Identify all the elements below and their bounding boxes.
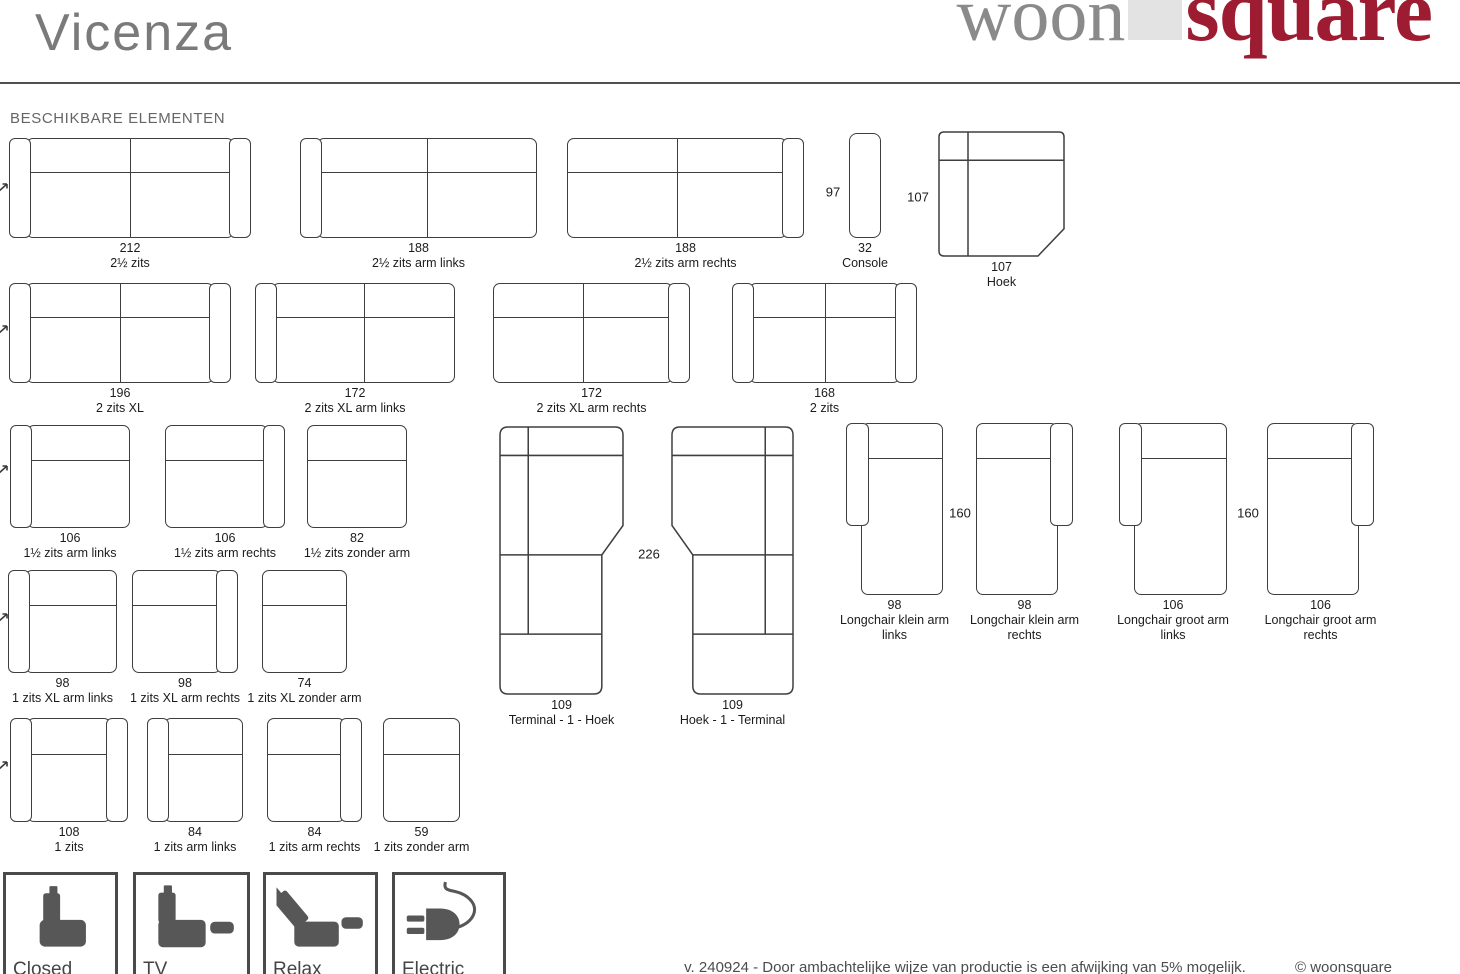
- back-cushion-line: [164, 754, 243, 755]
- feature-box-tv: TV: [133, 872, 250, 974]
- seat-divider-line: [427, 139, 428, 237]
- sofa-body: [26, 138, 234, 238]
- element-width-value: 106: [23, 531, 116, 546]
- footer-copyright: © woonsquare: [1295, 959, 1392, 974]
- back-cushion-line: [25, 605, 117, 606]
- element-name: 2 zits XL arm rechts: [537, 401, 647, 416]
- element-label-1half-zits-arm-links: 1061½ zits arm links: [23, 531, 116, 561]
- element-diagram-1-zits-arm-rechts: [267, 718, 362, 822]
- element-name: Longchair groot arm links: [1114, 613, 1232, 643]
- element-width-value: 106: [174, 531, 276, 546]
- element-diagram-2half-zits-arm-links: [300, 138, 537, 238]
- dimension-value: 107: [907, 190, 929, 205]
- back-cushion-line: [307, 460, 407, 461]
- element-diagram-longchair-groot-arm-links: [1119, 423, 1227, 595]
- element-label-1-zits: 1081 zits: [54, 825, 83, 855]
- right-arm: [782, 138, 804, 238]
- element-label-1-zits-arm-rechts: 841 zits arm rechts: [269, 825, 361, 855]
- logo-square-icon: [1128, 0, 1182, 40]
- seat-divider-line: [120, 284, 121, 382]
- relax-position-icon: [276, 879, 365, 964]
- element-width-value: 32: [842, 241, 888, 256]
- left-arm: [300, 138, 322, 238]
- right-arm: [216, 570, 238, 673]
- element-width-value: 106: [1262, 598, 1380, 613]
- sofa-body: [493, 283, 673, 383]
- closed-position-icon: [16, 879, 105, 964]
- element-name: 1 zits zonder arm: [374, 840, 470, 855]
- element-diagram-2-zits-xl: [9, 283, 231, 383]
- right-arm: [263, 425, 285, 528]
- element-name: 1 zits XL arm rechts: [130, 691, 240, 706]
- element-width-value: 188: [634, 241, 736, 256]
- element-name: 1½ zits zonder arm: [304, 546, 410, 561]
- element-name: 1 zits XL arm links: [12, 691, 113, 706]
- element-label-console: 32Console: [842, 241, 888, 271]
- sofa-body: [317, 138, 537, 238]
- element-width-value: 172: [537, 386, 647, 401]
- element-diagram-2-zits: [732, 283, 917, 383]
- element-label-2half-zits: 2122½ zits: [110, 241, 150, 271]
- element-width-value: 109: [509, 698, 615, 713]
- feature-label: Relax: [273, 959, 322, 974]
- element-diagram-2half-zits-arm-rechts: [567, 138, 804, 238]
- back-cushion-line: [861, 458, 943, 459]
- sofa-body: [25, 570, 117, 673]
- back-cushion-line: [1267, 458, 1359, 459]
- element-width-value: 98: [12, 676, 113, 691]
- element-name: 1 zits arm links: [154, 840, 237, 855]
- element-diagram-1half-zits-arm-rechts: [165, 425, 285, 528]
- sofa-body: [749, 283, 900, 383]
- dimension-value: 160: [1237, 506, 1259, 521]
- element-diagram-1half-zits-zonder-arm: [307, 425, 407, 528]
- element-diagram-longchair-klein-arm-rechts: [976, 423, 1073, 595]
- element-name: Console: [842, 256, 888, 271]
- element-name: 1 zits arm rechts: [269, 840, 361, 855]
- section-heading: BESCHIKBARE ELEMENTEN: [10, 110, 225, 127]
- back-cushion-line: [262, 605, 347, 606]
- right-arm: [668, 283, 690, 383]
- element-diagram-2-zits-xl-arm-rechts: [493, 283, 690, 383]
- sofa-body: [164, 718, 243, 822]
- seat-divider-line: [825, 284, 826, 382]
- element-width-value: 98: [966, 598, 1084, 613]
- element-label-2-zits: 1682 zits: [810, 386, 839, 416]
- left-arm: [846, 423, 869, 526]
- element-label-1half-zits-arm-rechts: 1061½ zits arm rechts: [174, 531, 276, 561]
- sofa-body: [383, 718, 460, 822]
- catalog-page: Vicenza woonsquare BESCHIKBARE ELEMENTEN…: [0, 0, 1460, 974]
- element-label-2half-zits-arm-rechts: 1882½ zits arm rechts: [634, 241, 736, 271]
- header-divider: [0, 82, 1460, 84]
- back-cushion-line: [267, 754, 345, 755]
- cut-off-dimension-arrow-icon: [0, 180, 9, 198]
- right-arm: [1050, 423, 1073, 526]
- left-arm: [9, 283, 31, 383]
- back-cushion-line: [1134, 458, 1227, 459]
- dimension-value: 97: [826, 185, 840, 200]
- element-diagram-hoek-1-terminal: [671, 426, 794, 695]
- sofa-body: [307, 425, 407, 528]
- back-cushion-line: [165, 460, 268, 461]
- feature-box-closed: Closed: [3, 872, 118, 974]
- sofa-body: [27, 425, 130, 528]
- element-diagram-hoek: [938, 131, 1065, 257]
- right-arm: [209, 283, 231, 383]
- element-name: 2 zits XL arm links: [305, 401, 406, 416]
- left-arm: [1119, 423, 1142, 526]
- element-label-1-zits-zonder-arm: 591 zits zonder arm: [374, 825, 470, 855]
- element-diagram-longchair-groot-arm-rechts: [1267, 423, 1374, 595]
- footer-version-note: v. 240924 - Door ambachtelijke wijze van…: [660, 959, 1270, 974]
- element-diagram-1-zits-xl-arm-links: [8, 570, 117, 673]
- element-diagram-1-zits-xl-zonder-arm: [262, 570, 347, 673]
- element-label-2-zits-xl: 1962 zits XL: [96, 386, 144, 416]
- element-name: 2 zits XL: [96, 401, 144, 416]
- element-name: 1 zits XL zonder arm: [247, 691, 361, 706]
- element-width-value: 107: [987, 260, 1016, 275]
- feature-box-electric: Electric: [392, 872, 506, 974]
- back-cushion-line: [976, 458, 1058, 459]
- element-label-1-zits-xl-zonder-arm: 741 zits XL zonder arm: [247, 676, 361, 706]
- tv-position-icon: [146, 879, 237, 964]
- logo-text-woon: woon: [956, 0, 1125, 57]
- left-arm: [9, 138, 31, 238]
- seat-divider-line: [364, 284, 365, 382]
- sofa-body: [272, 283, 455, 383]
- woonsquare-logo: woonsquare: [956, 0, 1432, 86]
- sofa-body: [27, 718, 111, 822]
- element-label-longchair-groot-arm-rechts: 106Longchair groot arm rechts: [1262, 598, 1380, 643]
- element-width-value: 59: [374, 825, 470, 840]
- sofa-body: [26, 283, 214, 383]
- seat-divider-line: [677, 139, 678, 237]
- element-name: 2½ zits: [110, 256, 150, 271]
- element-width-value: 84: [154, 825, 237, 840]
- element-diagram-console: [849, 133, 881, 238]
- cut-off-dimension-arrow-icon: [0, 322, 9, 340]
- left-arm: [255, 283, 277, 383]
- element-width-value: 109: [680, 698, 785, 713]
- longchair-body: [1134, 423, 1227, 595]
- feature-label: Closed: [13, 959, 72, 974]
- dimension-value: 226: [638, 547, 660, 562]
- element-width-value: 172: [305, 386, 406, 401]
- cut-off-dimension-arrow-icon: [0, 758, 9, 776]
- element-width-value: 188: [372, 241, 465, 256]
- back-cushion-line: [27, 754, 111, 755]
- element-label-hoek-1-terminal: 109Hoek - 1 - Terminal: [680, 698, 785, 728]
- element-label-longchair-klein-arm-links: 98Longchair klein arm links: [836, 598, 954, 643]
- left-arm: [147, 718, 169, 822]
- sofa-body: [567, 138, 787, 238]
- sofa-body: [267, 718, 345, 822]
- seat-divider-line: [130, 139, 131, 237]
- longchair-body: [1267, 423, 1359, 595]
- feature-label: TV: [143, 959, 167, 974]
- element-diagram-1-zits-xl-arm-rechts: [132, 570, 238, 673]
- element-name: Hoek: [987, 275, 1016, 290]
- right-arm: [895, 283, 917, 383]
- element-diagram-2half-zits: [9, 138, 251, 238]
- element-label-hoek: 107Hoek: [987, 260, 1016, 290]
- left-arm: [732, 283, 754, 383]
- element-diagram-1half-zits-arm-links: [10, 425, 130, 528]
- element-name: 1½ zits arm rechts: [174, 546, 276, 561]
- element-name: Longchair groot arm rechts: [1262, 613, 1380, 643]
- electric-plug-icon: [405, 879, 493, 964]
- element-label-1-zits-arm-links: 841 zits arm links: [154, 825, 237, 855]
- right-arm: [340, 718, 362, 822]
- element-label-1-zits-xl-arm-links: 981 zits XL arm links: [12, 676, 113, 706]
- element-label-2-zits-xl-arm-rechts: 1722 zits XL arm rechts: [537, 386, 647, 416]
- element-name: 2½ zits arm links: [372, 256, 465, 271]
- element-label-1-zits-xl-arm-rechts: 981 zits XL arm rechts: [130, 676, 240, 706]
- cut-off-dimension-arrow-icon: [0, 462, 9, 480]
- element-width-value: 168: [810, 386, 839, 401]
- feature-box-relax: Relax: [263, 872, 378, 974]
- sofa-body: [132, 570, 221, 673]
- seat-divider-line: [583, 284, 584, 382]
- feature-label: Electric: [402, 959, 464, 974]
- dimension-value: 160: [949, 506, 971, 521]
- element-diagram-terminal-1-hoek: [499, 426, 624, 695]
- right-arm: [106, 718, 128, 822]
- element-width-value: 196: [96, 386, 144, 401]
- element-label-longchair-groot-arm-links: 106Longchair groot arm links: [1114, 598, 1232, 643]
- element-diagram-longchair-klein-arm-links: [846, 423, 943, 595]
- element-name: 1½ zits arm links: [23, 546, 116, 561]
- element-name: Longchair klein arm links: [836, 613, 954, 643]
- element-diagram-1-zits: [10, 718, 128, 822]
- element-label-2half-zits-arm-links: 1882½ zits arm links: [372, 241, 465, 271]
- element-width-value: 74: [247, 676, 361, 691]
- back-cushion-line: [383, 754, 460, 755]
- element-width-value: 84: [269, 825, 361, 840]
- element-width-value: 106: [1114, 598, 1232, 613]
- left-arm: [10, 718, 32, 822]
- element-label-longchair-klein-arm-rechts: 98Longchair klein arm rechts: [966, 598, 1084, 643]
- logo-text-square: square: [1185, 0, 1432, 60]
- element-name: 1 zits: [54, 840, 83, 855]
- left-arm: [10, 425, 32, 528]
- element-name: 2½ zits arm rechts: [634, 256, 736, 271]
- element-label-2-zits-xl-arm-links: 1722 zits XL arm links: [305, 386, 406, 416]
- element-name: Hoek - 1 - Terminal: [680, 713, 785, 728]
- right-arm: [229, 138, 251, 238]
- element-diagram-1-zits-zonder-arm: [383, 718, 460, 822]
- element-name: Longchair klein arm rechts: [966, 613, 1084, 643]
- sofa-body: [165, 425, 268, 528]
- element-label-terminal-1-hoek: 109Terminal - 1 - Hoek: [509, 698, 615, 728]
- longchair-body: [976, 423, 1058, 595]
- sofa-body: [262, 570, 347, 673]
- element-width-value: 108: [54, 825, 83, 840]
- back-cushion-line: [27, 460, 130, 461]
- element-label-1half-zits-zonder-arm: 821½ zits zonder arm: [304, 531, 410, 561]
- element-name: Terminal - 1 - Hoek: [509, 713, 615, 728]
- page-title: Vicenza: [35, 2, 233, 64]
- right-arm: [1351, 423, 1374, 526]
- element-width-value: 212: [110, 241, 150, 256]
- element-name: 2 zits: [810, 401, 839, 416]
- longchair-body: [861, 423, 943, 595]
- element-width-value: 82: [304, 531, 410, 546]
- element-width-value: 98: [130, 676, 240, 691]
- element-diagram-1-zits-arm-links: [147, 718, 243, 822]
- left-arm: [8, 570, 30, 673]
- element-width-value: 98: [836, 598, 954, 613]
- element-diagram-2-zits-xl-arm-links: [255, 283, 455, 383]
- back-cushion-line: [132, 605, 221, 606]
